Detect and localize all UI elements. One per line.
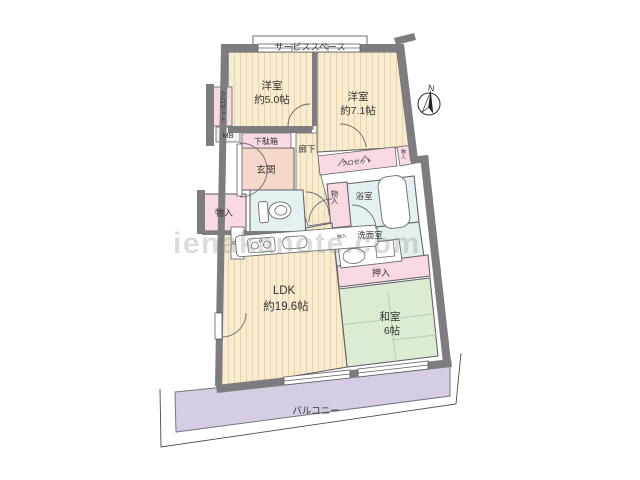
closet-left-label: クロゼット (219, 91, 226, 123)
storage-left-label: 物入 (215, 207, 233, 218)
shoe-cabinet-label: 下駄箱 (254, 136, 278, 146)
compass-north-label: N (427, 83, 435, 94)
western-large-size: 約7.1帖 (340, 104, 376, 117)
hallway-label: 廊下 (298, 144, 316, 154)
storage-right-label: 物入 (400, 148, 406, 159)
meter-box-label: MB (222, 131, 233, 140)
service-space-label: サービススペース (275, 42, 346, 52)
washroom-label: 洗面室 (357, 230, 383, 240)
ldk-name: LDK (273, 285, 296, 297)
floor-plan-page: N ienakanote.com サービススペース 洋室 約5.0帖 洋室 約7… (0, 0, 640, 480)
storage-center-label: 物入 (331, 189, 340, 204)
bathroom-label: 浴室 (355, 191, 373, 201)
western-small-name: 洋室 (262, 79, 283, 92)
japanese-room-size: 6帖 (384, 324, 401, 337)
floor-plan-svg: N ienakanote.com サービススペース 洋室 約5.0帖 洋室 約7… (0, 0, 640, 480)
western-large-name: 洋室 (348, 90, 369, 103)
futon-closet-label: 押入 (372, 267, 390, 278)
balcony-label: バルコニー (292, 406, 339, 417)
ldk-size: 約19.6帖 (263, 299, 308, 313)
storage-center (327, 182, 351, 228)
bathtub (377, 174, 411, 229)
watermark: ienakanote.com (173, 227, 421, 260)
japanese-room-name: 和室 (380, 310, 401, 323)
western-small-size: 約5.0帖 (254, 93, 290, 106)
entrance-label: 玄関 (256, 164, 275, 176)
